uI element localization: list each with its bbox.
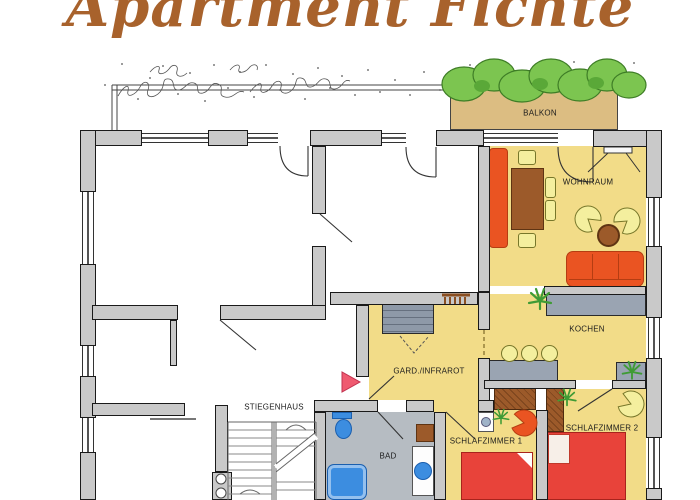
room-label-stiegenhaus: STIEGENHAUS: [244, 403, 304, 412]
entrance-arrow-icon: [342, 372, 360, 392]
bedroom1-door-leaf: [446, 412, 475, 439]
dashed-lines: [400, 330, 484, 358]
bath-door-leaf: [378, 412, 403, 439]
vine-scribbles: [118, 65, 350, 97]
door-arc: [280, 146, 308, 176]
room-label-kochen: KOCHEN: [569, 325, 604, 334]
bedroom2-door-leaf: [578, 389, 612, 411]
room-label-bad: BAD: [379, 452, 396, 461]
plant-icon: [493, 289, 641, 424]
room-label-gard-infrarot: GARD./INFRAROT: [393, 367, 464, 376]
stairs: [228, 422, 316, 500]
tv-icon: [588, 147, 640, 172]
room-label-wohnraum: WOHNRAUM: [563, 178, 613, 187]
door-leaf: [220, 320, 256, 350]
door-leaf: [320, 214, 352, 242]
armchair-fan: [511, 201, 648, 438]
coat-hooks: [442, 295, 470, 304]
floor-plan-page: Apartment Fichte: [0, 0, 700, 500]
stair-newel: [216, 474, 226, 484]
room-label-balkon: BALKON: [523, 109, 557, 118]
balcony-bushes: [442, 59, 646, 102]
door-arc: [406, 147, 436, 177]
entrance-door-leaf: [369, 376, 394, 399]
stair-newel: [216, 488, 226, 498]
room-label-schlafzimmer2: SCHLAFZIMMER 2: [566, 424, 639, 433]
room-label-schlafzimmer1: SCHLAFZIMMER 1: [450, 437, 523, 446]
trellis: [112, 85, 458, 130]
